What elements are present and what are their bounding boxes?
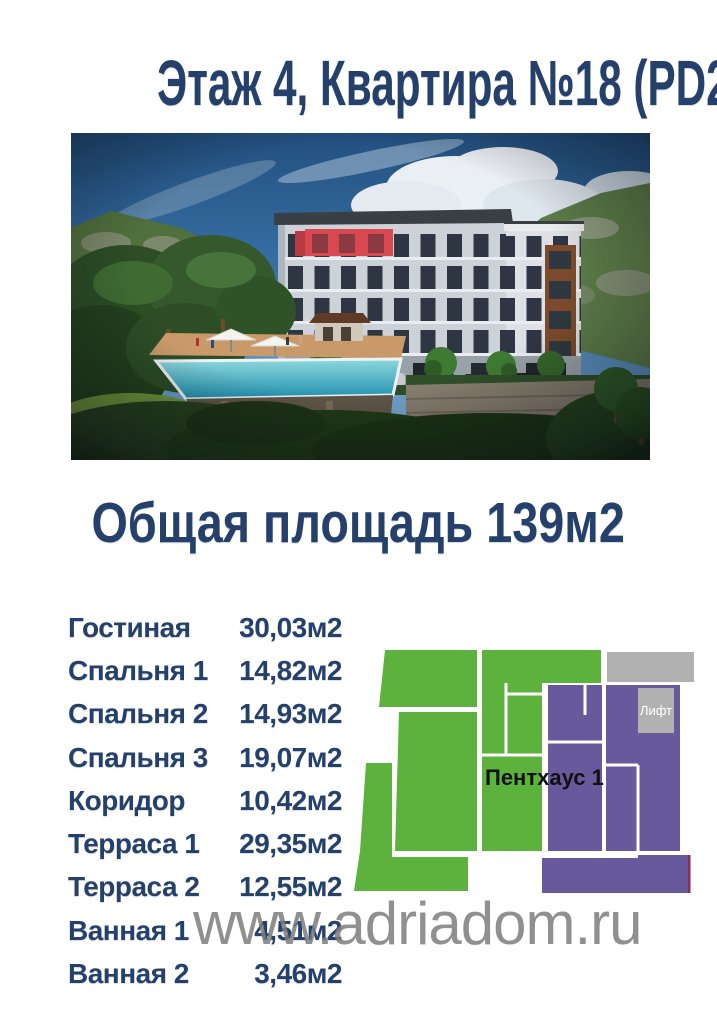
room-label: Ванная 1 [68,915,189,947]
page-title-wrap: Этаж 4, Квартира №18 (PD28) [0,50,717,117]
room-label: Терраса 1 [68,828,199,860]
floor-plan: Пентхаус 1 Лифт [352,645,700,897]
room-row: Гостиная 30,03м2 [68,606,342,649]
room-label: Коридор [68,785,185,817]
room-label: Терраса 2 [68,871,199,903]
area-heading-wrap: Общая площадь 139м2 [0,494,717,554]
room-area: 19,07м2 [239,742,342,774]
room-area: 10,42м2 [239,785,342,817]
plan-edge-accent [688,855,691,893]
room-row: Ванная 2 3,46м2 [68,952,342,995]
room-row: Спальня 1 14,82м2 [68,649,342,692]
room-label: Гостиная [68,612,191,644]
room-area: 29,35м2 [239,828,342,860]
room-area: 3,46м2 [254,958,342,990]
room-area: 14,93м2 [239,698,342,730]
page-title: Этаж 4, Квартира №18 (PD28) [157,50,717,117]
room-row: Спальня 3 19,07м2 [68,736,342,779]
room-label: Спальня 3 [68,742,208,774]
vignette [71,133,650,460]
room-area: 14,82м2 [239,655,342,687]
room-label: Ванная 2 [68,958,189,990]
penthouse-label: Пентхаус 1 [485,765,604,790]
room-label: Спальня 2 [68,698,208,730]
watermark: www.adriadom.ru [193,889,642,958]
area-heading: Общая площадь 139м2 [92,494,625,554]
room-area: 30,03м2 [239,612,342,644]
elevator-label: Лифт [640,703,672,718]
room-row: Терраса 1 29,35м2 [68,822,342,865]
building-photo [71,133,650,460]
room-row: Коридор 10,42м2 [68,779,342,822]
flyer-page: Этаж 4, Квартира №18 (PD28) [0,0,717,1024]
room-row: Спальня 2 14,93м2 [68,693,342,736]
room-label: Спальня 1 [68,655,208,687]
